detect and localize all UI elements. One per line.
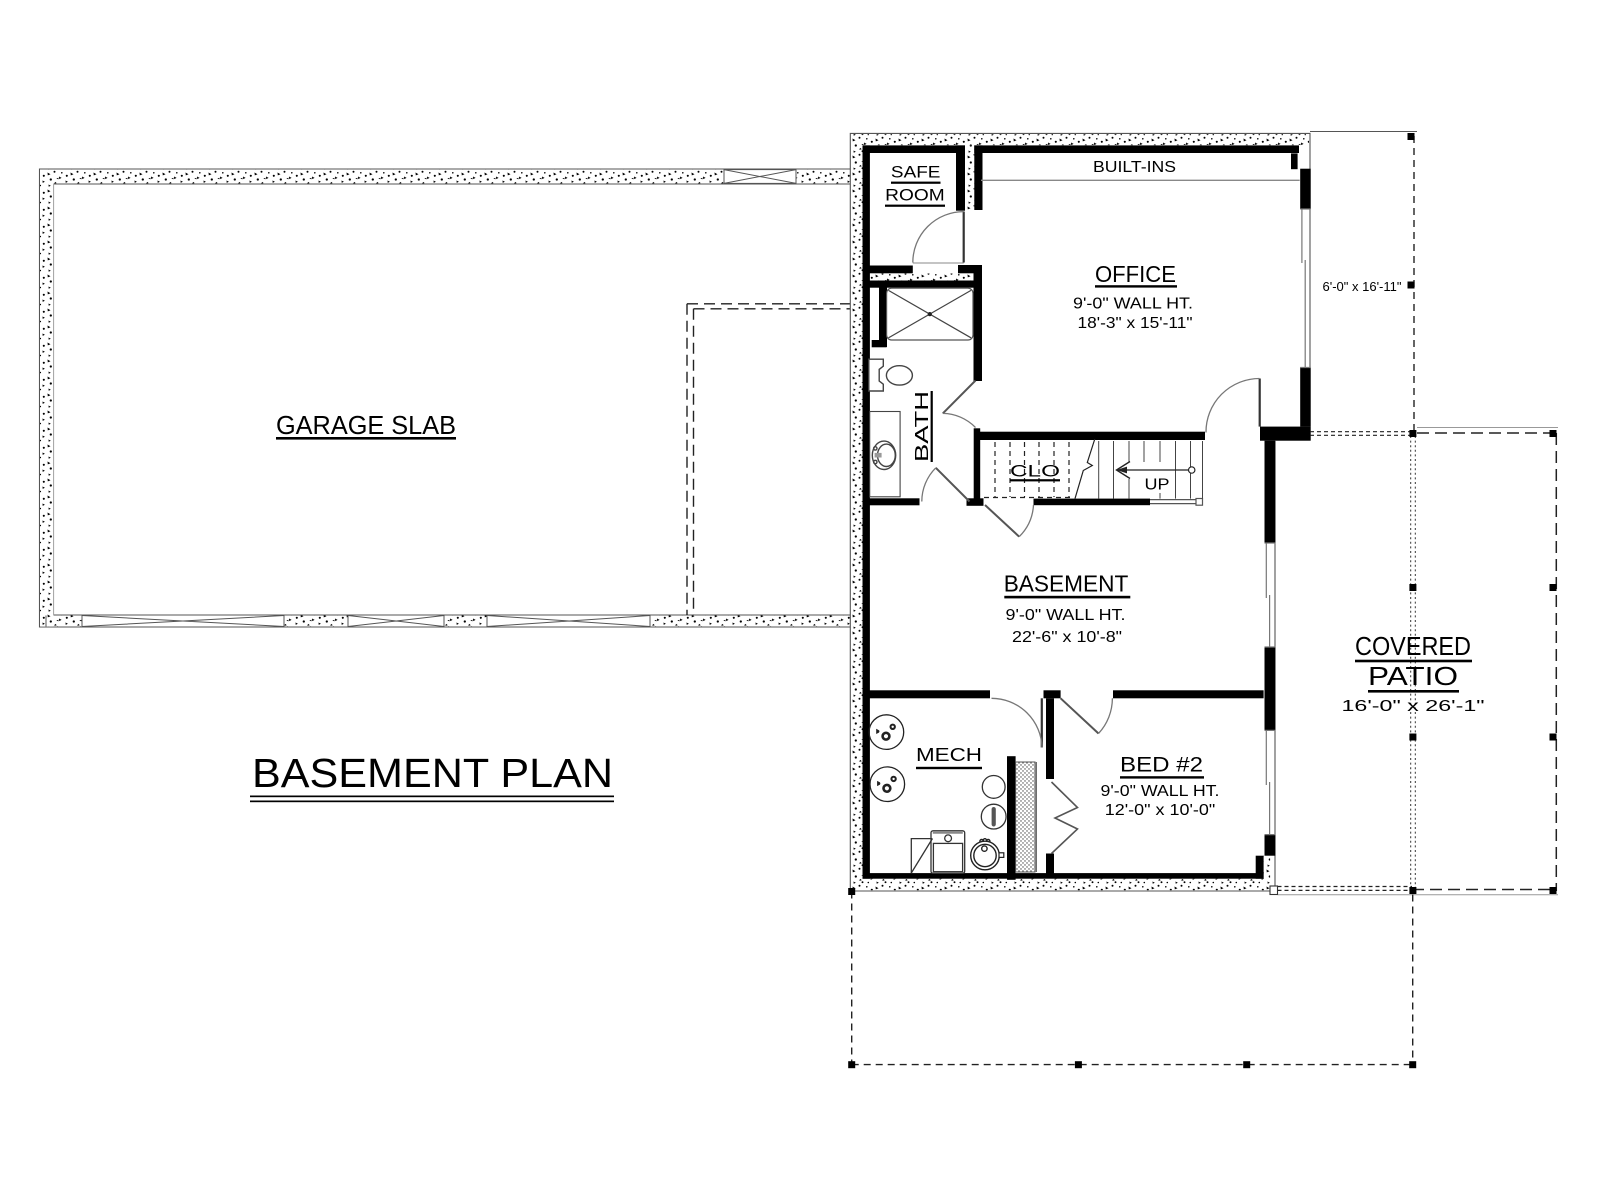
svg-text:BUILT-INS: BUILT-INS — [1093, 159, 1176, 176]
svg-text:ROOM: ROOM — [885, 186, 945, 205]
svg-text:PATIO: PATIO — [1368, 661, 1458, 691]
svg-text:6'-0" x 16'-11": 6'-0" x 16'-11" — [1323, 280, 1402, 294]
svg-text:BED #2: BED #2 — [1120, 754, 1203, 777]
svg-text:CLO: CLO — [1010, 462, 1060, 481]
svg-text:UP: UP — [1145, 477, 1170, 494]
svg-text:9'-0" WALL HT.: 9'-0" WALL HT. — [1073, 296, 1193, 313]
svg-text:GARAGE SLAB: GARAGE SLAB — [276, 410, 456, 440]
svg-text:9'-0" WALL HT.: 9'-0" WALL HT. — [1006, 607, 1126, 624]
svg-text:COVERED: COVERED — [1355, 631, 1471, 661]
svg-text:SAFE: SAFE — [891, 162, 941, 181]
svg-text:9'-0" WALL HT.: 9'-0" WALL HT. — [1101, 783, 1220, 800]
svg-text:12'-0" x 10'-0": 12'-0" x 10'-0" — [1105, 802, 1216, 819]
svg-text:BASEMENT PLAN: BASEMENT PLAN — [252, 750, 613, 796]
svg-text:22'-6" x 10'-8": 22'-6" x 10'-8" — [1012, 629, 1122, 646]
svg-text:OFFICE: OFFICE — [1095, 261, 1176, 287]
svg-text:BASEMENT: BASEMENT — [1004, 571, 1129, 597]
svg-text:18'-3" x 15'-11": 18'-3" x 15'-11" — [1078, 315, 1193, 332]
svg-text:BATH: BATH — [912, 391, 932, 462]
svg-text:MECH: MECH — [916, 744, 982, 765]
svg-text:16'-0" x 26'-1": 16'-0" x 26'-1" — [1342, 698, 1485, 715]
